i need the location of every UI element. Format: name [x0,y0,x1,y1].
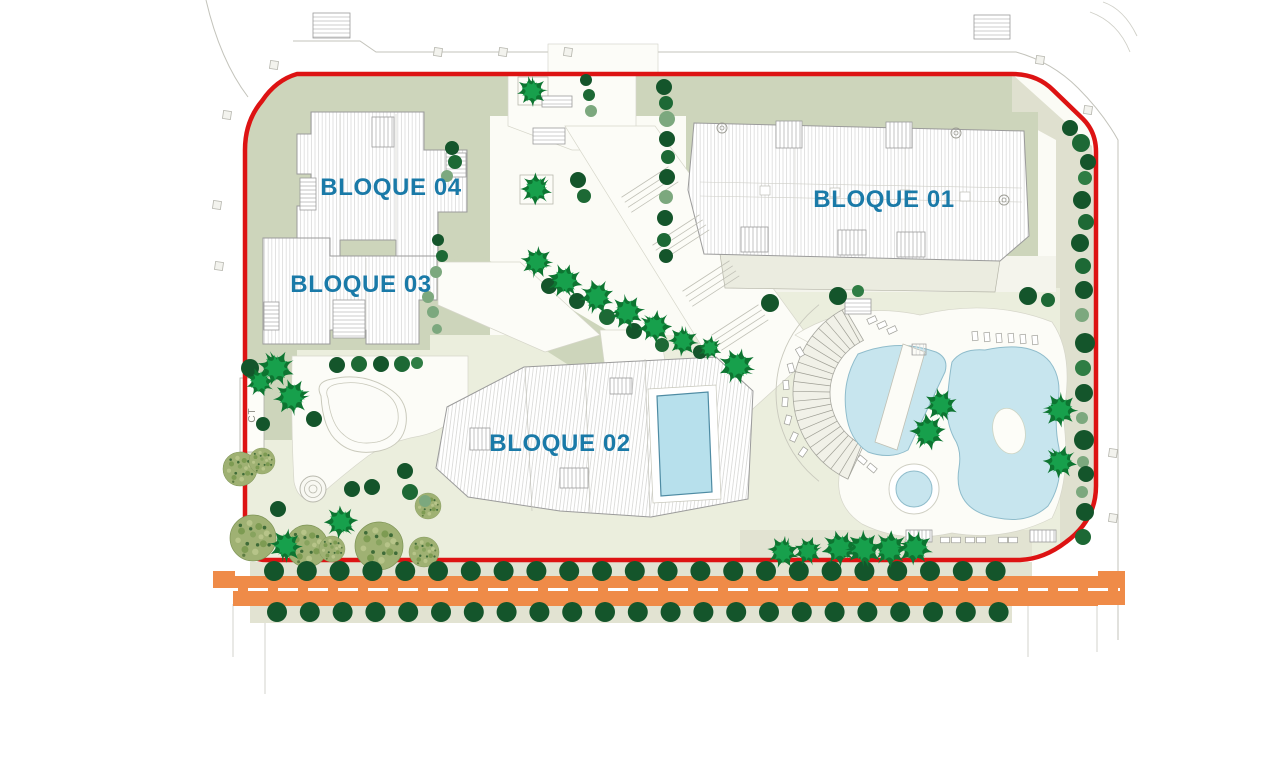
bloque-03-label: BLOQUE 03 [290,271,431,298]
bloque-02-pool [657,392,712,496]
round-tree [1075,333,1095,353]
round-tree [1075,258,1091,274]
street-tree [854,561,874,581]
olive-tree [355,522,403,570]
street-tree [825,602,845,622]
stair-symbol [838,230,866,255]
street-tree [595,602,615,622]
street-tree [267,602,287,622]
street-tree [497,602,517,622]
street-tree [362,561,382,581]
round-tree [659,169,675,185]
drain-marker [222,110,231,119]
stair-symbol [300,178,316,210]
fountain [300,476,326,502]
round-tree [445,141,459,155]
olive-tree [230,515,276,561]
street-tree [923,602,943,622]
stair-symbol [741,227,768,252]
street-tree [822,561,842,581]
stair-symbol [776,121,802,148]
street-tree [333,602,353,622]
sun-lounger [941,537,950,543]
street-tree [562,602,582,622]
round-tree [1078,466,1094,482]
street-tree [726,602,746,622]
drain-marker [214,261,223,270]
drain-marker [212,200,221,209]
street-tree [264,561,284,581]
round-tree [419,495,431,507]
round-tree [659,190,673,204]
sun-lounger [966,537,975,543]
round-tree [657,210,673,226]
round-tree [1080,154,1096,170]
bloque-04-label: BLOQUE 04 [320,174,461,201]
street-tree [395,561,415,581]
round-tree [1075,308,1089,322]
drain-marker [269,60,278,69]
street-tree [723,561,743,581]
sun-lounger [984,332,990,341]
drain-marker [1108,513,1117,522]
drain-marker [1108,448,1117,457]
stair-symbol [610,378,632,394]
round-tree [411,357,423,369]
street-tree [398,602,418,622]
street-tree [431,602,451,622]
round-tree [761,294,779,312]
stair-symbol [372,117,394,147]
street-tree [658,561,678,581]
sun-lounger [1008,333,1014,342]
round-tree [577,189,591,203]
olive-tree [249,448,275,474]
stair-symbol [264,302,279,330]
sun-lounger [782,397,788,406]
round-tree [256,417,270,431]
stair-symbol [886,122,912,148]
street-tree [789,561,809,581]
street-tree [365,602,385,622]
round-tree [1062,120,1078,136]
round-tree [1041,293,1055,307]
sun-lounger [952,537,961,543]
stair-symbol [845,299,871,314]
round-tree [306,411,322,427]
street-tree [756,561,776,581]
round-tree [569,293,585,309]
street-tree [494,561,514,581]
round-tree [402,484,418,500]
round-tree [1078,171,1092,185]
street-tree [300,602,320,622]
stair-symbol [542,96,572,107]
round-tree [583,89,595,101]
bloque-02-label: BLOQUE 02 [489,430,630,457]
ct-label: CT [247,407,258,422]
street-tree [953,561,973,581]
round-tree [626,323,642,339]
round-tree [659,111,675,127]
round-tree [1076,412,1088,424]
street-tree [464,602,484,622]
street-tree [461,561,481,581]
round-tree [1078,214,1094,230]
sun-lounger [783,380,789,389]
round-tree [364,479,380,495]
street-tree [628,602,648,622]
stair-symbol [1030,530,1056,542]
round-tree [373,356,389,372]
street-tree [529,602,549,622]
round-tree [432,324,442,334]
stair-symbol [533,128,565,144]
round-tree [344,481,360,497]
street-tree [428,561,448,581]
round-tree [448,155,462,169]
street-tree [690,561,710,581]
street-tree [956,602,976,622]
bloque-01-label: BLOQUE 01 [813,186,954,213]
street-tree [792,602,812,622]
street-tree [857,602,877,622]
round-tree [1071,234,1089,252]
round-tree [1019,287,1037,305]
round-tree [430,266,442,278]
round-tree [1073,191,1091,209]
street-tree [661,602,681,622]
round-tree [570,172,586,188]
site-plan-svg: CT [0,0,1280,768]
round-tree [270,501,286,517]
drain-marker [563,47,572,56]
sun-lounger [996,333,1002,342]
round-tree [852,285,864,297]
sun-lounger [1020,334,1026,343]
round-tree [329,357,345,373]
round-tree [1072,134,1090,152]
round-tree [585,105,597,117]
round-tree [1075,529,1091,545]
street-tree [920,561,940,581]
round-tree [659,131,675,147]
street-tree [693,602,713,622]
round-tree [1076,486,1088,498]
street-tree [625,561,645,581]
street-tree [526,561,546,581]
sun-lounger [1032,335,1038,344]
round-tree [397,463,413,479]
drain-marker [1035,55,1044,64]
street-tree [759,602,779,622]
street-tree [890,602,910,622]
sun-lounger [1009,537,1018,543]
round-tree [427,306,439,318]
round-tree [1075,384,1093,402]
street-tree [986,561,1006,581]
street-tree [330,561,350,581]
round-tree [1075,281,1093,299]
round-tree [659,249,673,263]
drain-marker [433,47,442,56]
sun-lounger [977,537,986,543]
round-tree [1075,360,1091,376]
drain-marker [1083,105,1092,114]
stair-symbol [470,428,490,450]
stair-symbol [313,13,350,38]
street-tree [297,561,317,581]
sun-lounger [999,537,1008,543]
street-tree [592,561,612,581]
street-tree [989,602,1009,622]
round-tree [432,234,444,246]
stair-symbol [560,468,588,488]
stair-symbol [897,232,925,257]
stair-symbol [333,300,365,338]
round-tree [394,356,410,372]
round-pool [896,471,932,507]
site-plan: CT [0,0,1280,768]
drain-marker [498,47,507,56]
round-tree [1076,503,1094,521]
round-tree [661,150,675,164]
street-tree [559,561,579,581]
stair-symbol [974,15,1010,39]
round-tree [1074,430,1094,450]
sun-lounger [972,331,978,340]
olive-tree [319,536,345,562]
round-tree [657,233,671,247]
round-tree [659,96,673,110]
round-tree [436,250,448,262]
round-tree [656,79,672,95]
round-tree [351,356,367,372]
round-tree [829,287,847,305]
round-tree [580,74,592,86]
